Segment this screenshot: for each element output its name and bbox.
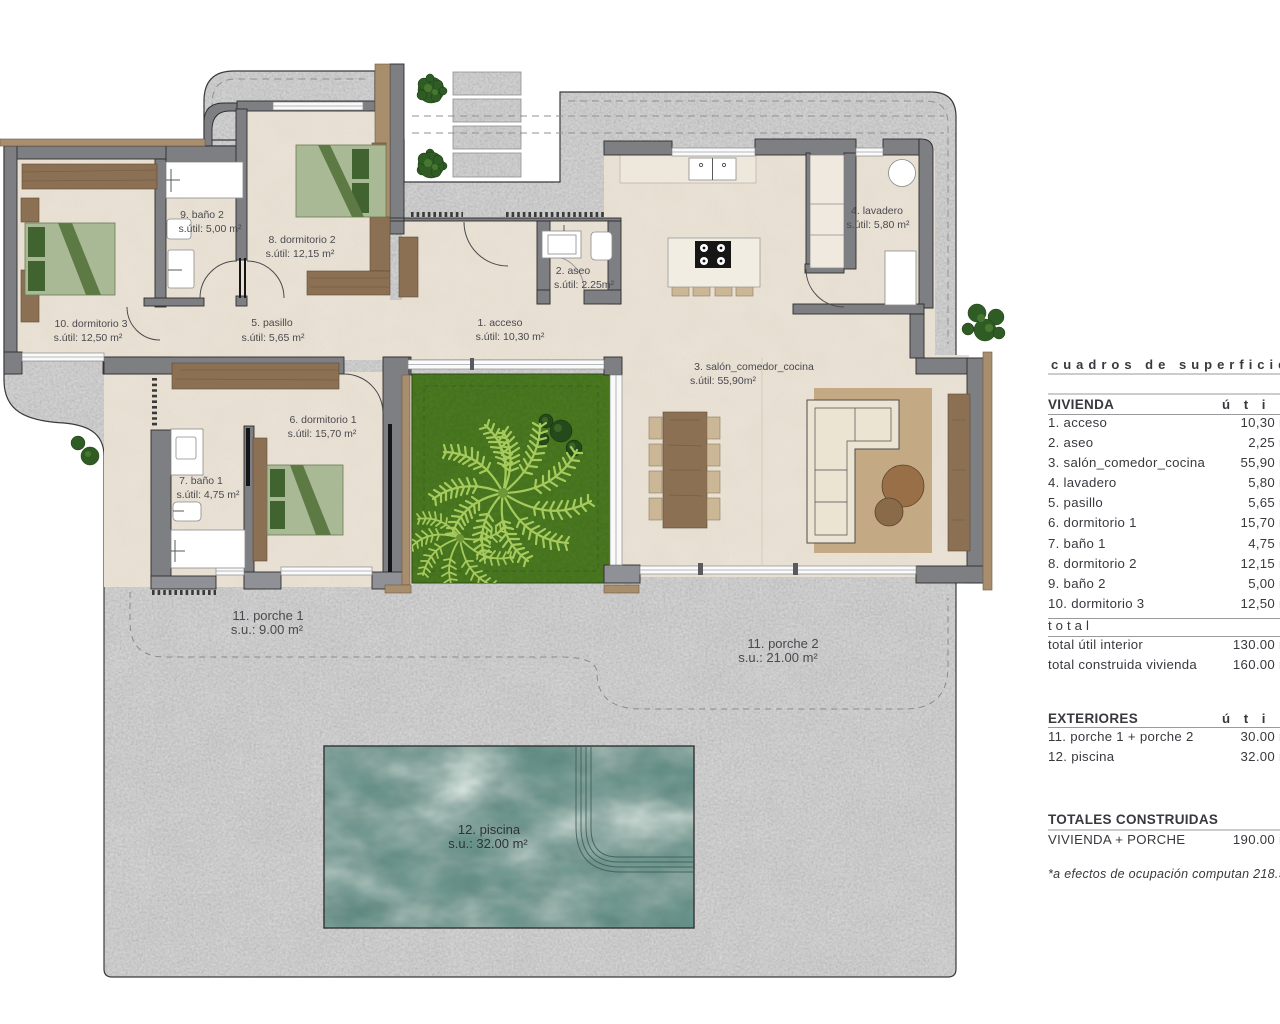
svg-text:12. piscina: 12. piscina: [1048, 749, 1115, 764]
svg-text:130.00 m²: 130.00 m²: [1233, 637, 1280, 652]
svg-text:32.00 m²: 32.00 m²: [1241, 749, 1280, 764]
svg-text:s.útil: 4,75 m²: s.útil: 4,75 m²: [176, 489, 240, 501]
svg-text:s.útil: 5,65 m²: s.útil: 5,65 m²: [241, 332, 305, 344]
svg-text:12. piscina: 12. piscina: [458, 822, 521, 837]
svg-text:4,75 m²: 4,75 m²: [1248, 536, 1280, 551]
svg-text:2,25 m²: 2,25 m²: [1248, 435, 1280, 450]
svg-text:10. dormitorio 3: 10. dormitorio 3: [55, 318, 128, 330]
svg-text:15,70 m²: 15,70 m²: [1241, 515, 1280, 530]
svg-text:*a efectos de ocupación comput: *a efectos de ocupación computan 218.50 …: [1048, 867, 1280, 881]
svg-text:5,80 m²: 5,80 m²: [1248, 475, 1280, 490]
svg-text:4. lavadero: 4. lavadero: [1048, 475, 1117, 490]
svg-text:1. acceso: 1. acceso: [478, 317, 523, 329]
svg-text:TOTALES CONSTRUIDAS: TOTALES CONSTRUIDAS: [1048, 812, 1218, 827]
svg-text:VIVIENDA: VIVIENDA: [1048, 397, 1114, 412]
svg-text:30.00 m²: 30.00 m²: [1241, 729, 1280, 744]
svg-text:11. porche 1 + porche 2: 11. porche 1 + porche 2: [1048, 729, 1194, 744]
svg-text:8. dormitorio 2: 8. dormitorio 2: [1048, 556, 1137, 571]
svg-text:7. baño 1: 7. baño 1: [1048, 536, 1106, 551]
svg-text:ú t i: ú t i: [1222, 397, 1270, 412]
svg-text:cuadros de superficie: cuadros de superficie: [1051, 357, 1280, 372]
svg-text:s.útil: 5,00 m²: s.útil: 5,00 m²: [178, 223, 242, 235]
svg-text:s.útil: 12,15 m²: s.útil: 12,15 m²: [266, 248, 335, 260]
svg-text:s.u.: 21.00 m²: s.u.: 21.00 m²: [738, 650, 818, 665]
svg-text:total: total: [1048, 618, 1093, 633]
svg-text:11. porche 1: 11. porche 1: [232, 608, 303, 623]
svg-text:5,00 m²: 5,00 m²: [1248, 576, 1280, 591]
svg-text:1. acceso: 1. acceso: [1048, 415, 1107, 430]
svg-text:10,30 m²: 10,30 m²: [1241, 415, 1280, 430]
svg-text:190.00 m²: 190.00 m²: [1233, 832, 1280, 847]
svg-text:5. pasillo: 5. pasillo: [1048, 495, 1103, 510]
svg-text:9. baño 2: 9. baño 2: [180, 209, 224, 221]
svg-text:7. baño 1: 7. baño 1: [179, 475, 223, 487]
svg-text:5. pasillo: 5. pasillo: [251, 317, 293, 329]
svg-text:total útil interior: total útil interior: [1048, 637, 1143, 652]
svg-text:s.útil: 5,80 m²: s.útil: 5,80 m²: [846, 219, 910, 231]
svg-text:2. aseo: 2. aseo: [556, 265, 591, 277]
svg-text:6. dormitorio 1: 6. dormitorio 1: [289, 414, 356, 426]
svg-text:3. salón_comedor_cocina: 3. salón_comedor_cocina: [694, 361, 814, 373]
svg-text:s.u.: 9.00 m²: s.u.: 9.00 m²: [231, 622, 304, 637]
svg-text:s.útil: 12,50 m²: s.útil: 12,50 m²: [54, 332, 123, 344]
svg-text:s.u.: 32.00 m²: s.u.: 32.00 m²: [448, 836, 528, 851]
svg-text:160.00 m²: 160.00 m²: [1233, 657, 1280, 672]
svg-text:VIVIENDA + PORCHE: VIVIENDA + PORCHE: [1048, 832, 1185, 847]
svg-text:ú t i: ú t i: [1222, 711, 1270, 726]
svg-text:8. dormitorio 2: 8. dormitorio 2: [268, 234, 335, 246]
svg-text:s.útil: 2.25m²: s.útil: 2.25m²: [554, 279, 615, 291]
svg-text:EXTERIORES: EXTERIORES: [1048, 711, 1138, 726]
svg-text:9. baño 2: 9. baño 2: [1048, 576, 1106, 591]
svg-text:4. lavadero: 4. lavadero: [851, 205, 903, 217]
svg-text:12,15 m²: 12,15 m²: [1241, 556, 1280, 571]
svg-text:6. dormitorio 1: 6. dormitorio 1: [1048, 515, 1137, 530]
svg-text:2. aseo: 2. aseo: [1048, 435, 1093, 450]
svg-text:5,65 m²: 5,65 m²: [1248, 495, 1280, 510]
svg-text:s.útil: 10,30 m²: s.útil: 10,30 m²: [476, 331, 545, 343]
svg-text:11. porche 2: 11. porche 2: [747, 636, 818, 651]
svg-text:3. salón_comedor_cocina: 3. salón_comedor_cocina: [1048, 455, 1206, 470]
svg-text:s.útil: 15,70 m²: s.útil: 15,70 m²: [288, 428, 357, 440]
svg-text:s.útil: 55,90m²: s.útil: 55,90m²: [690, 375, 756, 387]
svg-text:total construida vivienda: total construida vivienda: [1048, 657, 1197, 672]
svg-text:10. dormitorio 3: 10. dormitorio 3: [1048, 596, 1144, 611]
svg-text:55,90 m²: 55,90 m²: [1241, 455, 1280, 470]
svg-text:12,50 m²: 12,50 m²: [1241, 596, 1280, 611]
